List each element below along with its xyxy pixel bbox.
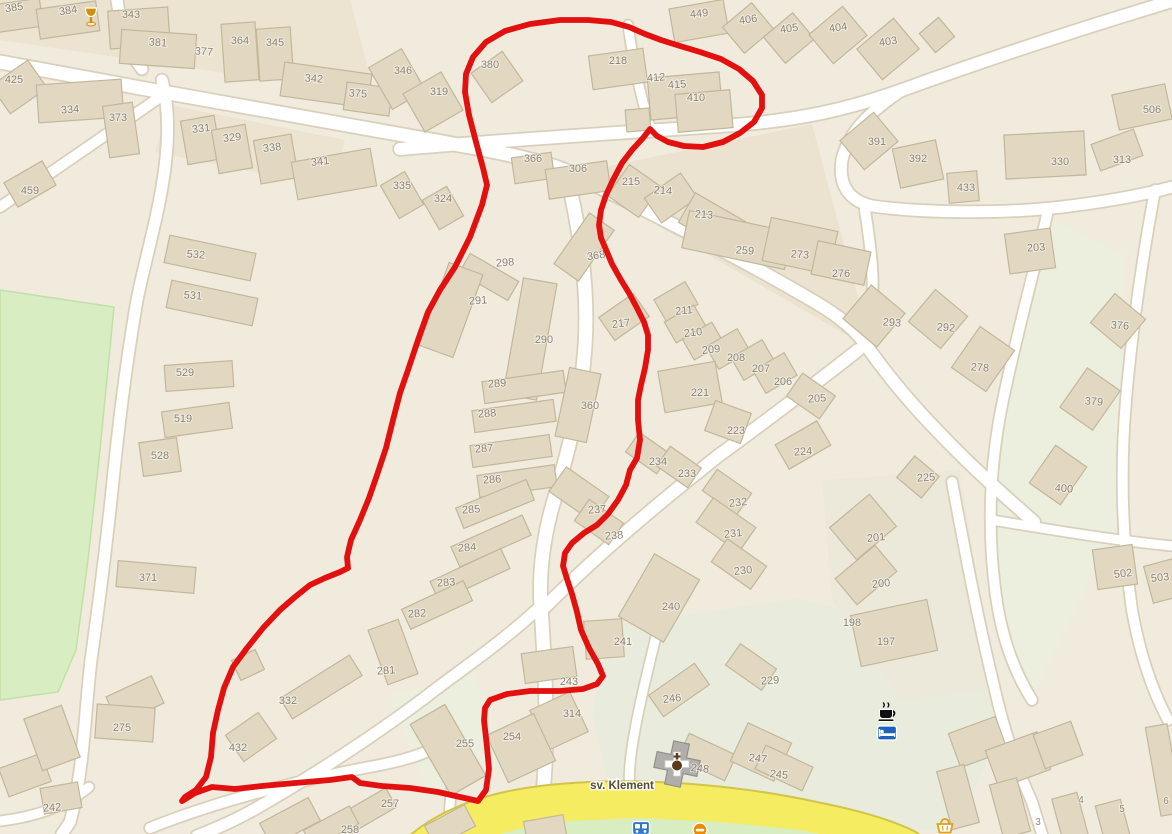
house-number-label: 425 [5, 74, 23, 86]
house-number-label: 211 [675, 304, 694, 318]
house-number-label: 6 [1163, 796, 1169, 807]
saucer [878, 719, 894, 721]
map-viewport[interactable]: 3853843433813773643453423753463194253343… [0, 0, 1172, 834]
house-number-label: 201 [866, 531, 886, 545]
bed-pillow [880, 730, 884, 734]
house-number-label: 392 [909, 153, 927, 165]
house-number-label: 410 [687, 92, 705, 104]
house-number-label: 257 [381, 798, 399, 810]
house-number-label: 207 [752, 363, 770, 375]
house-number-label: 332 [279, 695, 297, 707]
house-number-label: 200 [871, 577, 891, 591]
house-number-label: 278 [970, 361, 989, 374]
house-number-label: 218 [609, 55, 627, 67]
house-number-label: 377 [194, 45, 213, 58]
hotel-icon[interactable] [878, 726, 897, 740]
church-dot [672, 760, 683, 771]
house-number-label: 3 [1035, 817, 1041, 828]
house-number-label: 502 [1113, 567, 1133, 581]
bus-wheel-right [644, 830, 647, 833]
house-number-label: 342 [304, 72, 323, 85]
house-number-label: 210 [683, 326, 703, 340]
house-number-label: 281 [376, 664, 395, 677]
house-number-label: 306 [569, 163, 587, 175]
house-number-label: 217 [611, 317, 631, 331]
house-number-label: 405 [779, 22, 799, 36]
house-number-label: 283 [436, 576, 455, 589]
house-number-label: 330 [1051, 156, 1069, 168]
house-number-label: 291 [468, 294, 487, 307]
house-number-label: 364 [231, 35, 249, 47]
house-number-label: 198 [843, 617, 861, 629]
house-number-label: 248 [690, 762, 710, 776]
house-number-label: 404 [828, 21, 848, 35]
house-number-label: 273 [790, 248, 809, 261]
house-number-label: 245 [769, 768, 789, 782]
fast-food-icon[interactable] [693, 823, 707, 834]
house-number-label: 406 [738, 13, 758, 27]
house-number-label: 254 [503, 731, 521, 743]
house-number-label: 346 [394, 65, 412, 77]
house-number-label: 231 [723, 527, 743, 541]
map-canvas[interactable]: 3853843433813773643453423753463194253343… [0, 0, 1172, 834]
house-number-label: 213 [694, 208, 713, 221]
house-number-label: 223 [727, 425, 745, 437]
house-number-label: 258 [341, 824, 359, 834]
house-number-label: 343 [122, 9, 140, 21]
house-number-label: 324 [434, 193, 452, 205]
bus-wheel-left [636, 830, 639, 833]
house-number-label: 224 [793, 445, 812, 458]
house-number-label: 203 [1026, 241, 1045, 254]
house-number-label: 366 [524, 153, 542, 165]
house-number-label: 384 [58, 4, 78, 18]
house-number-label: 531 [183, 289, 202, 302]
house-number-label: 232 [728, 496, 748, 510]
house-number-label: 403 [878, 35, 898, 49]
house-number-label: 338 [262, 141, 282, 155]
house-number-label: 289 [487, 377, 506, 390]
cup-body [880, 710, 893, 719]
house-number-label: 298 [495, 256, 514, 269]
house-number-label: 449 [689, 7, 709, 21]
bus-window-left [635, 824, 640, 829]
house-number-label: 293 [882, 316, 901, 329]
house-number-label: 334 [60, 103, 79, 116]
bus-stop-icon[interactable] [633, 822, 650, 834]
house-number-label: 233 [678, 468, 696, 480]
house-number-label: 215 [622, 176, 640, 188]
house-number-label: 371 [139, 572, 157, 584]
house-number-label: 276 [832, 268, 850, 280]
house-number-label: 380 [481, 59, 499, 71]
house-number-label: 229 [760, 674, 779, 687]
food-glyph [696, 829, 704, 832]
house-number-label: 205 [807, 392, 826, 405]
house-number-label: 259 [735, 244, 754, 257]
house-number-label: 360 [581, 400, 599, 412]
house-number-label: 242 [42, 801, 61, 814]
house-number-label: 243 [560, 676, 578, 688]
house-number-label: 275 [113, 722, 131, 734]
house-number-label: 329 [222, 131, 242, 145]
house-number-label: 373 [109, 112, 127, 124]
house-number-label: 4 [1078, 795, 1084, 806]
house-number-label: 376 [1110, 319, 1129, 332]
house-number-label: 285 [461, 503, 480, 516]
house-number-label: 240 [662, 601, 680, 613]
house-number-label: 292 [936, 321, 955, 334]
house-number-label: 221 [691, 387, 709, 399]
house-number-label: 284 [457, 541, 476, 554]
house-number-label: 503 [1150, 571, 1170, 585]
house-number-label: 375 [348, 87, 367, 100]
house-number-label: 335 [393, 180, 411, 192]
house-number-label: 214 [653, 184, 672, 197]
house-number-label: 241 [614, 636, 632, 648]
building [221, 22, 259, 82]
house-number-label: 381 [148, 36, 167, 49]
goblet-bowl [86, 8, 97, 17]
house-number-label: 247 [748, 752, 768, 766]
house-number-label: 206 [774, 376, 792, 388]
house-number-label: 288 [477, 407, 496, 420]
bed-mattress [880, 733, 894, 736]
house-number-label: 528 [151, 450, 169, 462]
house-number-label: 290 [535, 334, 553, 346]
hotel-bg [878, 726, 897, 740]
house-number-label: 415 [667, 78, 686, 91]
house-number-label: 286 [482, 473, 501, 486]
house-number-label: 287 [474, 442, 493, 455]
house-number-label: 5 [1119, 804, 1125, 815]
house-number-label: 246 [662, 692, 682, 706]
house-number-label: 345 [266, 37, 284, 49]
house-number-label: 234 [649, 456, 667, 468]
house-number-label: 412 [646, 71, 665, 84]
house-number-label: 529 [176, 367, 194, 379]
house-number-label: 331 [191, 122, 211, 136]
house-number-label: 282 [407, 607, 426, 620]
building [103, 102, 140, 158]
house-number-label: 385 [4, 1, 24, 15]
food-bg [693, 823, 707, 834]
house-number-label: 391 [868, 136, 886, 148]
place-name-label: sv. Klement [590, 780, 654, 792]
house-number-label: 459 [21, 185, 39, 197]
house-number-label: 208 [727, 352, 745, 364]
house-number-label: 230 [733, 564, 753, 578]
house-number-label: 319 [430, 86, 448, 98]
basket-body [938, 824, 953, 833]
house-number-label: 400 [1054, 482, 1073, 495]
house-number-label: 368 [586, 249, 606, 263]
house-number-label: 313 [1113, 154, 1131, 166]
house-number-label: 255 [456, 738, 474, 750]
house-number-label: 433 [957, 182, 975, 194]
house-number-label: 379 [1084, 395, 1103, 408]
house-number-label: 432 [229, 742, 247, 754]
house-number-label: 314 [563, 708, 581, 720]
house-number-label: 197 [877, 636, 895, 648]
building [1004, 131, 1086, 179]
building [164, 361, 234, 392]
house-number-label: 238 [604, 529, 623, 542]
house-number-label: 341 [310, 155, 330, 169]
house-number-label: 209 [701, 343, 721, 357]
house-number-label: 506 [1143, 104, 1161, 116]
bus-window-right [642, 824, 647, 829]
house-number-label: 225 [916, 471, 935, 484]
house-number-label: 519 [174, 413, 192, 425]
house-number-label: 532 [186, 248, 205, 261]
